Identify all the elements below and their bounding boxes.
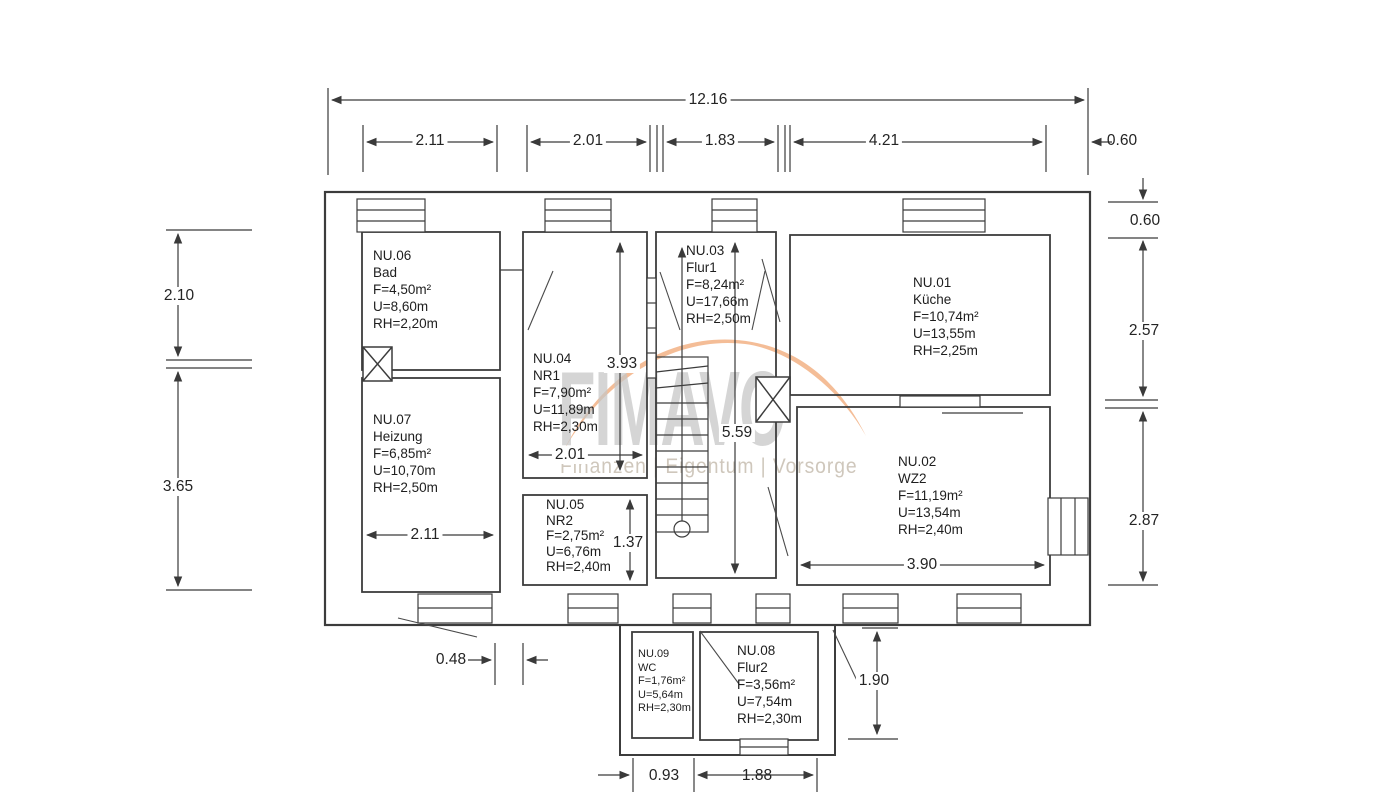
dim-top-segment-5: 0.60 — [1104, 132, 1140, 150]
room-height: RH=2,30m — [737, 710, 802, 727]
room-area: F=2,75m² — [546, 528, 611, 544]
dim-hall-height: 5.59 — [719, 424, 755, 442]
room-label-nu01: NU.01 Küche F=10,74m² U=13,55m RH=2,25m — [913, 274, 979, 359]
dim-flur2-width: 1.88 — [739, 767, 775, 785]
room-label-nu07: NU.07 Heizung F=6,85m² U=10,70m RH=2,50m — [373, 411, 438, 496]
dim-left-lower: 3.65 — [160, 478, 196, 496]
room-label-nu05: NU.05 NR2 F=2,75m² U=6,76m RH=2,40m — [546, 497, 611, 575]
room-perimeter: U=5,64m — [638, 689, 691, 703]
room-perimeter: U=13,54m — [898, 504, 963, 521]
dim-heizung-width: 2.11 — [407, 526, 442, 544]
room-name: WC — [638, 662, 691, 676]
room-area: F=3,56m² — [737, 676, 802, 693]
room-perimeter: U=7,54m — [737, 693, 802, 710]
room-id: NU.02 — [898, 453, 963, 470]
room-name: Küche — [913, 291, 979, 308]
dim-right-bottom: 2.87 — [1126, 512, 1162, 530]
room-height: RH=2,25m — [913, 342, 979, 359]
room-name: WZ2 — [898, 470, 963, 487]
dim-left-offset: 0.48 — [433, 651, 469, 669]
room-label-nu04: NU.04 NR1 F=7,90m² U=11,89m RH=2,30m — [533, 350, 598, 435]
room-area: F=11,19m² — [898, 487, 963, 504]
room-label-nu08: NU.08 Flur2 F=3,56m² U=7,54m RH=2,30m — [737, 642, 802, 727]
room-name: NR2 — [546, 513, 611, 529]
room-height: RH=2,30m — [533, 418, 598, 435]
dim-nr2-height: 1.37 — [610, 534, 646, 552]
room-perimeter: U=17,66m — [686, 293, 751, 310]
room-id: NU.09 — [638, 648, 691, 662]
dim-nr1-height: 3.93 — [604, 355, 640, 373]
room-id: NU.05 — [546, 497, 611, 513]
dim-top-segment-2: 2.01 — [570, 132, 606, 150]
room-area: F=8,24m² — [686, 276, 751, 293]
room-id: NU.06 — [373, 247, 438, 264]
room-height: RH=2,50m — [686, 310, 751, 327]
room-label-nu09: NU.09 WC F=1,76m² U=5,64m RH=2,30m — [638, 648, 691, 716]
room-area: F=10,74m² — [913, 308, 979, 325]
dim-top-segment-1: 2.11 — [412, 132, 447, 150]
room-id: NU.08 — [737, 642, 802, 659]
room-perimeter: U=6,76m — [546, 544, 611, 560]
room-area: F=7,90m² — [533, 384, 598, 401]
room-id: NU.04 — [533, 350, 598, 367]
room-perimeter: U=13,55m — [913, 325, 979, 342]
room-name: Bad — [373, 264, 438, 281]
dim-right-top: 0.60 — [1127, 212, 1163, 230]
dim-top-segment-3: 1.83 — [702, 132, 738, 150]
room-area: F=1,76m² — [638, 675, 691, 689]
room-name: Flur2 — [737, 659, 802, 676]
room-id: NU.01 — [913, 274, 979, 291]
room-perimeter: U=8,60m — [373, 298, 438, 315]
dim-right-middle: 2.57 — [1126, 322, 1162, 340]
labels-layer: 12.16 2.11 2.01 1.83 4.21 0.60 2.10 3.65… — [0, 0, 1383, 808]
room-id: NU.03 — [686, 242, 751, 259]
dim-total-width: 12.16 — [686, 91, 731, 109]
room-height: RH=2,40m — [546, 559, 611, 575]
room-perimeter: U=10,70m — [373, 462, 438, 479]
room-area: F=6,85m² — [373, 445, 438, 462]
dim-annex-height: 1.90 — [856, 672, 892, 690]
room-height: RH=2,30m — [638, 702, 691, 716]
room-height: RH=2,50m — [373, 479, 438, 496]
dim-nr1-width: 2.01 — [552, 446, 588, 464]
room-label-nu03: NU.03 Flur1 F=8,24m² U=17,66m RH=2,50m — [686, 242, 751, 327]
room-name: Heizung — [373, 428, 438, 445]
room-height: RH=2,20m — [373, 315, 438, 332]
dim-wc-width: 0.93 — [646, 767, 682, 785]
dim-wz2-width: 3.90 — [904, 556, 940, 574]
room-id: NU.07 — [373, 411, 438, 428]
room-perimeter: U=11,89m — [533, 401, 598, 418]
room-label-nu06: NU.06 Bad F=4,50m² U=8,60m RH=2,20m — [373, 247, 438, 332]
room-label-nu02: NU.02 WZ2 F=11,19m² U=13,54m RH=2,40m — [898, 453, 963, 538]
floor-plan-page: FIMAVO Finanzen | Eigentum | Vorsorge — [0, 0, 1383, 808]
dim-top-segment-4: 4.21 — [866, 132, 902, 150]
room-name: Flur1 — [686, 259, 751, 276]
room-area: F=4,50m² — [373, 281, 438, 298]
room-height: RH=2,40m — [898, 521, 963, 538]
room-name: NR1 — [533, 367, 598, 384]
dim-left-upper: 2.10 — [161, 287, 197, 305]
